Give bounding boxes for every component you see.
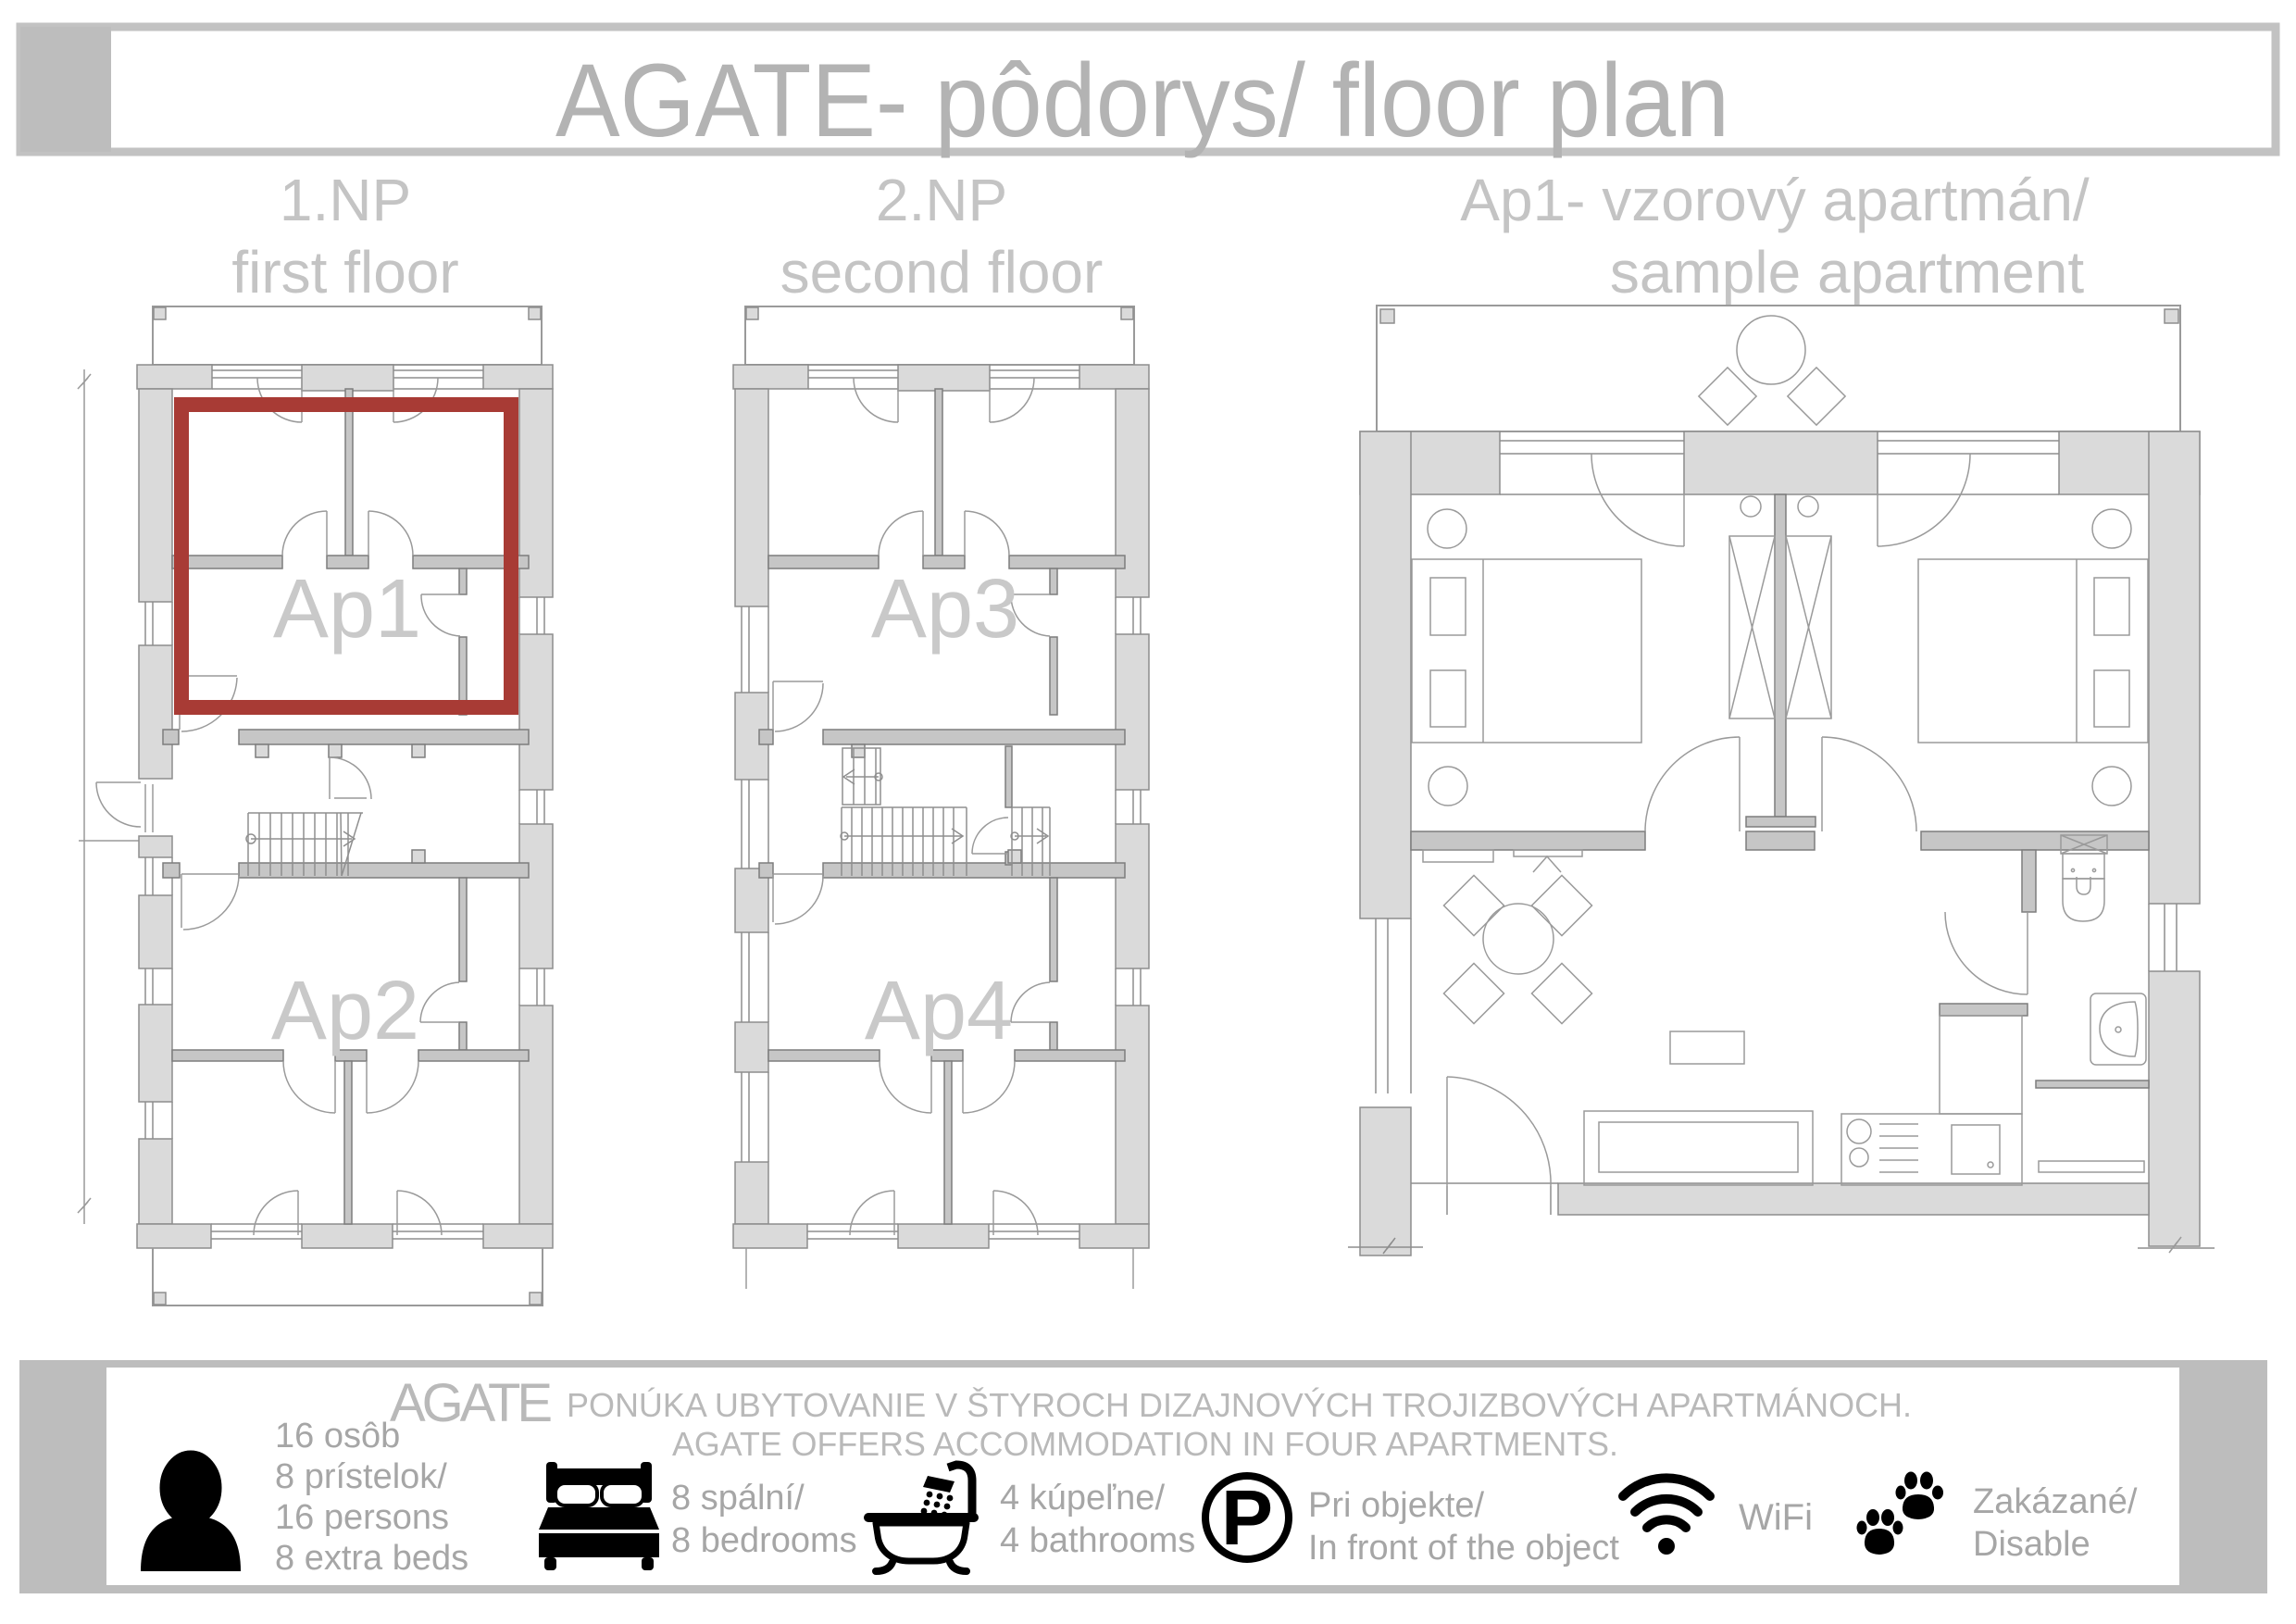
svg-text:Ap2: Ap2 xyxy=(271,965,419,1057)
svg-text:8 bedrooms: 8 bedrooms xyxy=(671,1521,857,1560)
svg-text:8 prístelok/: 8 prístelok/ xyxy=(275,1457,447,1496)
svg-text:AGATE: AGATE xyxy=(390,1373,553,1433)
svg-text:16 persons: 16 persons xyxy=(275,1498,449,1537)
svg-text:1.NP: 1.NP xyxy=(280,167,411,233)
svg-text:P: P xyxy=(1221,1474,1273,1561)
svg-text:WiFi: WiFi xyxy=(1739,1497,1813,1538)
svg-text:Pri objekte/: Pri objekte/ xyxy=(1308,1486,1485,1525)
svg-text:AGATE OFFERS ACCOMMODATION IN: AGATE OFFERS ACCOMMODATION IN FOUR APART… xyxy=(672,1425,1618,1463)
svg-text:16 osôb: 16 osôb xyxy=(275,1417,400,1455)
svg-text:8 extra beds: 8 extra beds xyxy=(275,1539,468,1578)
svg-text:PONÚKA UBYTOVANIE V ŠTYROCH DI: PONÚKA UBYTOVANIE V ŠTYROCH DIZAJNOVÝCH … xyxy=(567,1386,1912,1424)
svg-text:Ap1- vzorový apartmán/: Ap1- vzorový apartmán/ xyxy=(1460,167,2090,233)
svg-text:Ap1: Ap1 xyxy=(273,563,421,656)
svg-text:Ap4: Ap4 xyxy=(865,965,1013,1057)
svg-text:sample apartment: sample apartment xyxy=(1610,239,2084,306)
svg-text:AGATE- pôdorys/ floor plan: AGATE- pôdorys/ floor plan xyxy=(555,43,1729,158)
svg-text:Disable: Disable xyxy=(1973,1525,2090,1564)
svg-text:In front of the object: In front of the object xyxy=(1308,1529,1619,1568)
svg-text:2.NP: 2.NP xyxy=(876,167,1007,233)
svg-text:4 kúpeľne/: 4 kúpeľne/ xyxy=(1000,1479,1165,1518)
svg-text:4 bathrooms: 4 bathrooms xyxy=(1000,1521,1195,1560)
svg-text:Zakázané/: Zakázané/ xyxy=(1973,1482,2138,1521)
svg-text:Ap3: Ap3 xyxy=(871,563,1019,656)
svg-text:second floor: second floor xyxy=(780,239,1104,306)
svg-text:first floor: first floor xyxy=(231,239,458,306)
svg-text:8 spální/: 8 spální/ xyxy=(671,1479,805,1518)
